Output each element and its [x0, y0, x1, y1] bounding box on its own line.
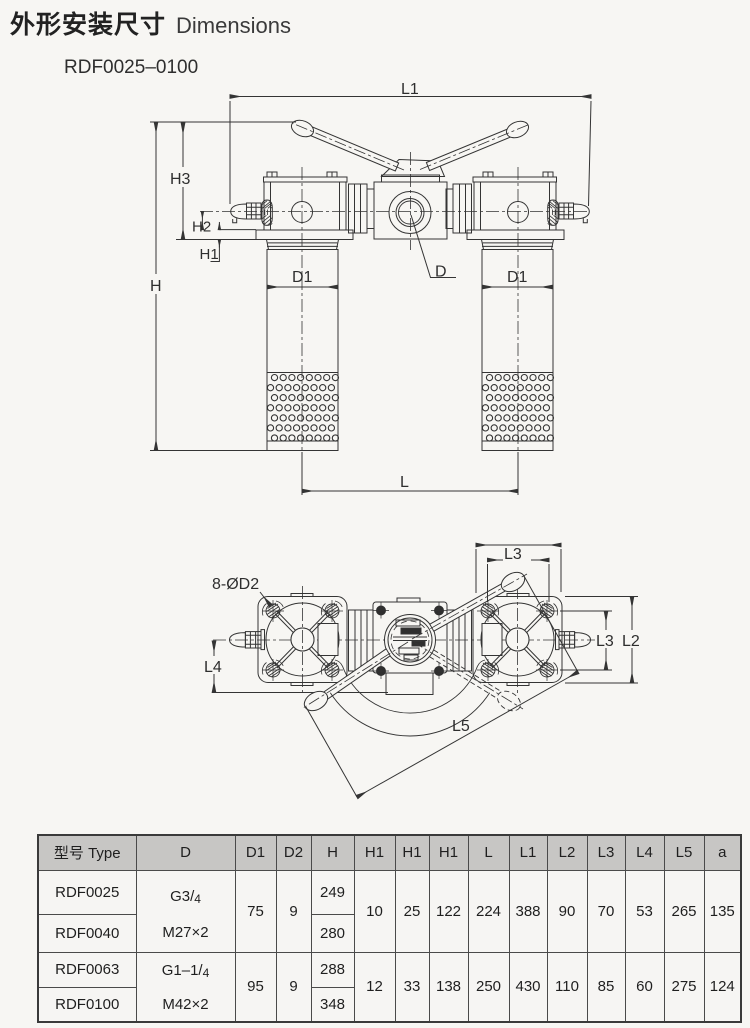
svg-text:D1: D1 — [507, 269, 528, 286]
svg-text:H2: H2 — [192, 219, 211, 236]
svg-text:H3: H3 — [170, 171, 191, 188]
svg-text:L1: L1 — [401, 81, 419, 98]
svg-text:D1: D1 — [292, 269, 313, 286]
svg-text:8-ØD2: 8-ØD2 — [212, 576, 259, 593]
svg-text:L3: L3 — [504, 546, 522, 563]
svg-text:L: L — [400, 474, 409, 491]
svg-text:H: H — [150, 278, 162, 295]
svg-text:L5: L5 — [452, 718, 470, 735]
svg-text:L2: L2 — [622, 633, 640, 650]
svg-text:D: D — [435, 264, 447, 281]
svg-text:H1: H1 — [200, 246, 219, 263]
svg-text:L3: L3 — [596, 633, 614, 650]
svg-text:L4: L4 — [204, 659, 222, 676]
